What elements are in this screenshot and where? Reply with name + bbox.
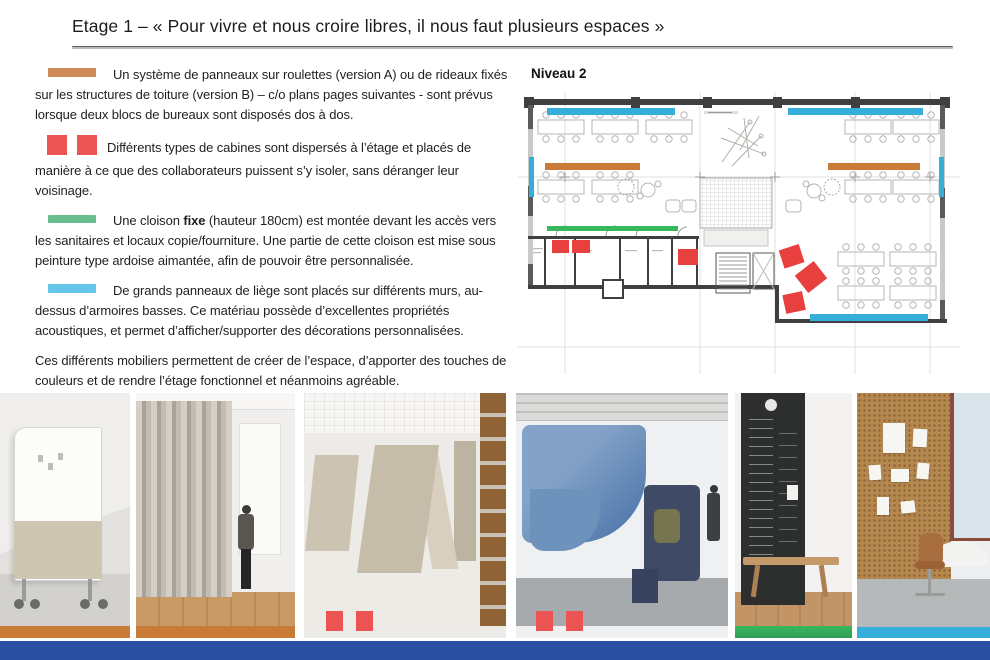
walking-person xyxy=(707,493,720,541)
office-chair xyxy=(915,593,945,596)
pinned-paper xyxy=(900,500,915,513)
cabin-markers xyxy=(326,611,373,636)
caster-wheel xyxy=(98,599,108,609)
photo-floor xyxy=(136,592,295,626)
paragraph-text: Différents types de cabines sont dispers… xyxy=(35,140,471,198)
legend-swatch-orange-bar xyxy=(48,68,96,77)
legend-swatch-blue-bar xyxy=(48,284,96,293)
office-chair xyxy=(919,533,943,563)
clipboard xyxy=(787,485,798,500)
panel-leg xyxy=(22,579,26,601)
caster-wheel xyxy=(14,599,24,609)
paragraph-text: De grands panneaux de liège sont placés … xyxy=(35,283,483,338)
paragraph: De grands panneaux de liège sont placés … xyxy=(35,281,509,341)
pinned-paper xyxy=(877,497,889,515)
blue-acoustic-canopy-inner xyxy=(530,489,600,551)
paragraph-text: Ces différents mobiliers permettent de c… xyxy=(35,353,506,388)
pinned-paper xyxy=(891,469,909,482)
wall-clock xyxy=(765,399,777,411)
pinned-note xyxy=(38,455,43,462)
pinned-paper xyxy=(883,423,905,453)
ottoman-cube xyxy=(632,569,658,603)
felt-curtain xyxy=(136,401,232,597)
photo-felt-curtain xyxy=(136,393,295,638)
bookshelf xyxy=(480,393,506,626)
photo-ceiling-pipes xyxy=(516,393,728,421)
wooden-bench xyxy=(743,557,839,565)
photo-cork-wall-desk xyxy=(857,393,990,638)
paragraph: Une cloison fixe (hauteur 180cm) est mon… xyxy=(35,211,509,271)
paragraph-text: (hauteur 180cm) est montée devant les ac… xyxy=(35,213,496,268)
pinned-note xyxy=(48,463,53,470)
red-square-icon xyxy=(77,135,97,155)
pinned-note xyxy=(58,453,63,460)
paragraph-text: Un système de panneaux sur roulettes (ve… xyxy=(35,67,507,122)
floor-plan-label: Niveau 2 xyxy=(531,66,587,81)
photo-floor xyxy=(857,579,990,627)
photo-accent-bar-orange xyxy=(136,626,295,638)
person-silhouette xyxy=(238,514,254,550)
page-title: Etage 1 – « Pour vivre et nous croire li… xyxy=(72,16,962,37)
office-chair xyxy=(915,561,945,569)
person-silhouette xyxy=(241,549,251,589)
panel-leg xyxy=(88,579,92,601)
caster-wheel xyxy=(30,599,40,609)
photo-accent-bar-blue xyxy=(857,627,990,638)
paragraph: Un système de panneaux sur roulettes (ve… xyxy=(35,65,509,125)
text-column: Un système de panneaux sur roulettes (ve… xyxy=(35,62,509,401)
window xyxy=(950,393,990,541)
legend-swatch-green-bar xyxy=(48,215,96,223)
cabin-markers xyxy=(536,611,583,636)
paragraph: Différents types de cabines sont dispers… xyxy=(35,135,509,201)
paragraph: Ces différents mobiliers permettent de c… xyxy=(35,351,509,391)
photo-mobile-whiteboard xyxy=(0,393,130,638)
photo-wall-mounted-booth xyxy=(516,393,728,638)
photo-ceiling xyxy=(304,393,506,433)
photo-felt-booths-library xyxy=(304,393,506,638)
whiteboard-fabric xyxy=(14,521,102,579)
walking-person xyxy=(710,485,718,493)
paragraph-text: fixe xyxy=(183,213,205,228)
seated-person xyxy=(654,509,680,543)
red-square-icon xyxy=(47,135,67,155)
person-silhouette xyxy=(242,505,251,514)
title-divider xyxy=(72,46,953,49)
pinned-paper xyxy=(916,463,929,480)
felt-booth xyxy=(454,441,476,561)
footer-bar xyxy=(0,641,990,660)
photo-chalkboard-wall xyxy=(735,393,852,638)
pinned-paper xyxy=(868,465,881,481)
photo-accent-bar-orange xyxy=(0,626,130,638)
legend-swatch-red-squares xyxy=(47,135,97,161)
photo-accent-bar-green xyxy=(735,626,852,638)
pinned-paper xyxy=(913,429,928,448)
floor-plan xyxy=(518,88,960,384)
caster-wheel xyxy=(80,599,90,609)
paragraph-text: Une cloison xyxy=(113,213,183,228)
slide: Etage 1 – « Pour vivre et nous croire li… xyxy=(0,0,990,660)
office-chair xyxy=(928,569,931,595)
